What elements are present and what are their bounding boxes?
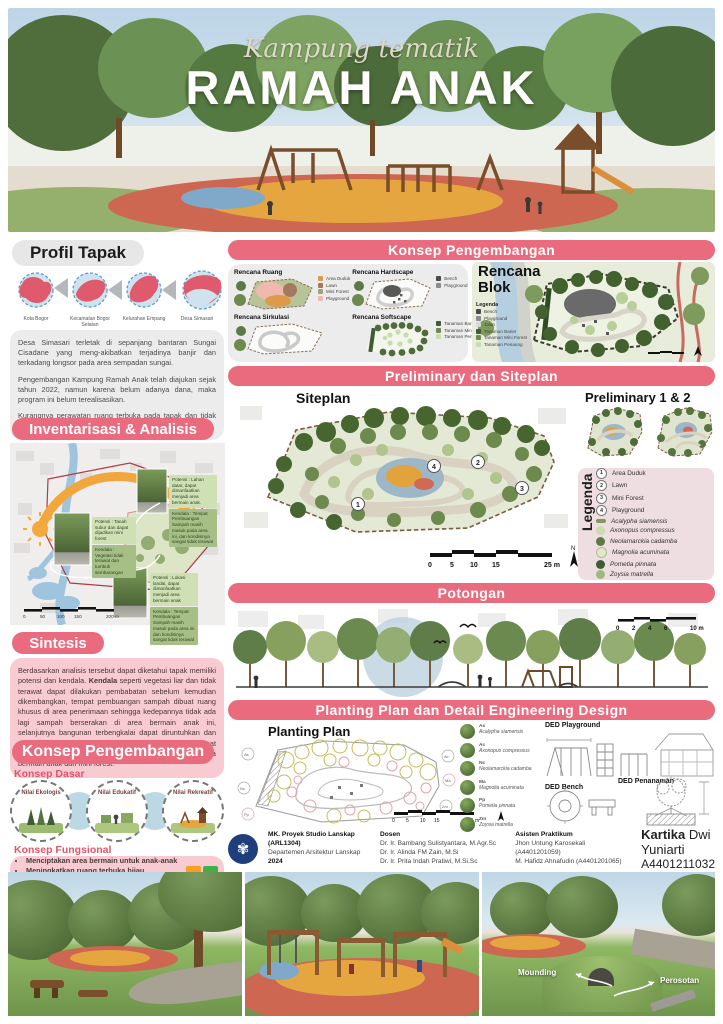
plant-photo [460, 780, 475, 795]
preliminary-1-map [582, 404, 646, 462]
profil-tapak-heading: Profil Tapak [12, 240, 144, 266]
ded-playground-drawing [547, 734, 713, 776]
ded-drawings [543, 730, 715, 826]
svg-text:5: 5 [406, 818, 409, 824]
rencana-softscape-map [352, 321, 434, 357]
footer-credits: ✾ MK. Proyek Studio Lanskap (ARL1304) De… [228, 830, 715, 868]
siteplan-map: 1 2 3 4 [238, 402, 574, 542]
picnic-table [30, 980, 64, 988]
siteplan-legenda-panel: Legenda 1Area Duduk 2Lawn 3Mini Forest 4… [578, 468, 714, 580]
rencana-hardscape-legend: Bench Playground [436, 276, 467, 312]
ipb-logo: ✾ [228, 834, 258, 864]
legenda-content: 1Area Duduk 2Lawn 3Mini Forest 4Playgrou… [594, 464, 714, 585]
inventarisasi-heading: Inventarisasi & Analisis [12, 418, 214, 440]
paragraph: Pengembangan Kampung Ramah Anak telah di… [18, 375, 216, 406]
poster-page: { "colors": { "accent_pink": "#EA6B7E", … [0, 0, 723, 1024]
konsep-dasar-circles: Nilai Ekologis Nilai Edukatif Nilai Rekr… [10, 780, 224, 842]
rencana-mini-plans: Rencana Ruang Area Duduk Lawn Mini Fores… [228, 264, 468, 362]
profil-map-labels: Kota Bogor Kecamatan Bogor Selatan Kelur… [10, 316, 224, 328]
perosotan-label: Perosotan [660, 976, 699, 985]
svg-text:50: 50 [40, 614, 46, 619]
annotation-arrows [562, 966, 662, 1006]
planting-heading: Planting Plan dan Detail Engineering Des… [228, 700, 715, 720]
svg-text:As: As [244, 752, 249, 757]
svg-text:1: 1 [356, 502, 360, 509]
konsep-dasar-label: Konsep Dasar [14, 768, 85, 780]
svg-text:4: 4 [432, 464, 436, 471]
konsep-fungsional-label: Konsep Fungsional [14, 844, 111, 856]
nilai-edukatif-circle: Nilai Edukatif [86, 780, 148, 842]
bottom-renders: Mounding Perosotan [8, 872, 715, 1016]
student-block: Kartika Dwi Yuniarti A4401211032 [641, 827, 715, 871]
svg-text:100: 100 [57, 614, 65, 619]
svg-text:Ac: Ac [444, 754, 449, 759]
edukatif-illustration [95, 803, 139, 833]
callout-3: Potensi : Lokasi landai, dapat dimanfaat… [150, 573, 198, 645]
north-arrow-icon: N [570, 546, 578, 567]
rencana-ruang-map [234, 276, 316, 312]
svg-text:2: 2 [632, 626, 636, 632]
siteplan-scale-bar: 0 5 10 15 25 m N [420, 545, 580, 575]
rencana-blok: Rencana Blok Legenda Bench Playground Ja… [472, 262, 715, 362]
map-label: Kelurahan Empang [118, 316, 170, 328]
potongan-section-drawing: 0 2 4 6 10 m [228, 605, 715, 697]
render-playground-closeup [245, 872, 479, 1016]
potongan-heading: Potongan [228, 583, 715, 603]
rencana-blok-title: Rencana Blok [478, 264, 548, 296]
callout-1: Potensi : Lahan datar, dapat dimanfaatka… [169, 475, 217, 547]
map-label: Desa Simasari [170, 316, 224, 328]
render-picnic-area [8, 872, 242, 1016]
swing-frame [267, 930, 319, 975]
svg-text:Nc: Nc [240, 786, 245, 791]
rencana-sirkulasi: Rencana Sirkulasi [234, 314, 350, 362]
svg-text:Ma: Ma [445, 778, 451, 783]
rencana-hardscape-map [352, 276, 434, 312]
svg-text:Pp: Pp [244, 812, 250, 817]
svg-text:0: 0 [392, 818, 395, 824]
svg-text:15: 15 [434, 818, 440, 824]
svg-text:150: 150 [74, 614, 82, 619]
svg-text:200 m: 200 m [106, 614, 119, 619]
hero-title-block: Kampung tematik RAMAH ANAK [8, 34, 715, 111]
svg-text:5: 5 [450, 562, 454, 569]
konsep-kanan-heading: Konsep Pengembangan [228, 240, 715, 260]
nilai-rekreatif-circle: Nilai Rekreatif [162, 780, 224, 842]
dosen-block: Dosen Dr. Ir. Bambang Sulistyantara, M.A… [380, 831, 505, 867]
sintesis-heading: Sintesis [12, 632, 104, 654]
svg-text:2: 2 [476, 460, 480, 467]
hero-title: RAMAH ANAK [8, 64, 715, 111]
preliminary-heading: Preliminary dan Siteplan [228, 366, 715, 386]
legenda-title: Legenda [579, 517, 595, 531]
plant-photo [460, 761, 475, 776]
map-label: Kecamatan Bogor Selatan [62, 316, 118, 328]
preliminary-2-map [652, 404, 716, 462]
svg-text:10 m: 10 m [690, 626, 704, 632]
picnic-table [78, 990, 108, 997]
rencana-sirkulasi-map [234, 321, 334, 357]
course-block: MK. Proyek Studio Lanskap (ARL1304) Depa… [268, 831, 370, 867]
child-figure [349, 964, 354, 974]
svg-text:10: 10 [420, 818, 426, 824]
climb-frame [337, 938, 385, 977]
svg-text:15: 15 [492, 562, 500, 569]
rencana-ruang-legend: Area Duduk Lawn Mini Forest Playground [318, 276, 350, 312]
rencana-blok-legenda: Legenda Bench Playground Jalan Tanaman B… [476, 302, 527, 348]
rencana-ruang: Rencana Ruang Area Duduk Lawn Mini Fores… [234, 269, 350, 312]
hero-render: Kampung tematik RAMAH ANAK [8, 8, 715, 232]
paragraph: Desa Simasari terletak di sepanjang bant… [18, 338, 216, 369]
svg-text:3: 3 [520, 486, 524, 493]
rencana-softscape: Rencana Softscape Tanaman Barier Tanaman… [352, 314, 487, 362]
svg-text:10: 10 [470, 562, 478, 569]
rekreatif-illustration [171, 803, 215, 833]
plant-photo [460, 798, 475, 813]
svg-text:N: N [571, 546, 575, 552]
ded-playground-label: DED Playground [545, 722, 600, 729]
asisten-block: Asisten Praktikum Jhon Untung Karosekali… [515, 831, 631, 867]
ded-bench-drawing [547, 788, 615, 824]
hero-subtitle: Kampung tematik [8, 34, 715, 64]
profil-tapak-maps [10, 268, 224, 316]
rencana-hardscape: Rencana Hardscape Bench Playground [352, 269, 487, 312]
nilai-ekologis-circle: Nilai Ekologis [10, 780, 72, 842]
render-mounding-area: Mounding Perosotan [482, 872, 715, 1016]
plant-photo [460, 743, 475, 758]
plant-photo [460, 724, 475, 739]
child-figure [417, 960, 422, 972]
inventarisasi-map: 0 50 100 150 200 m Potensi : Lahan datar… [10, 443, 225, 625]
svg-text:0: 0 [428, 562, 432, 569]
ground-line [236, 682, 708, 687]
ekologis-illustration [19, 803, 63, 833]
mounding-label: Mounding [518, 968, 556, 977]
plant-list: AsAcalypha siamensis AcAxonopus compress… [460, 724, 540, 835]
svg-text:25 m: 25 m [544, 562, 560, 569]
callout-2: Potensi : Tanah subur dan dapat dijadika… [92, 517, 136, 578]
preliminary-label: Preliminary 1 & 2 [585, 390, 691, 405]
konsep-kiri-heading: Konsep Pengembangan [12, 740, 214, 764]
map-label: Kota Bogor [10, 316, 62, 328]
svg-text:0: 0 [23, 614, 26, 619]
ded-penanaman-drawing [647, 778, 709, 825]
